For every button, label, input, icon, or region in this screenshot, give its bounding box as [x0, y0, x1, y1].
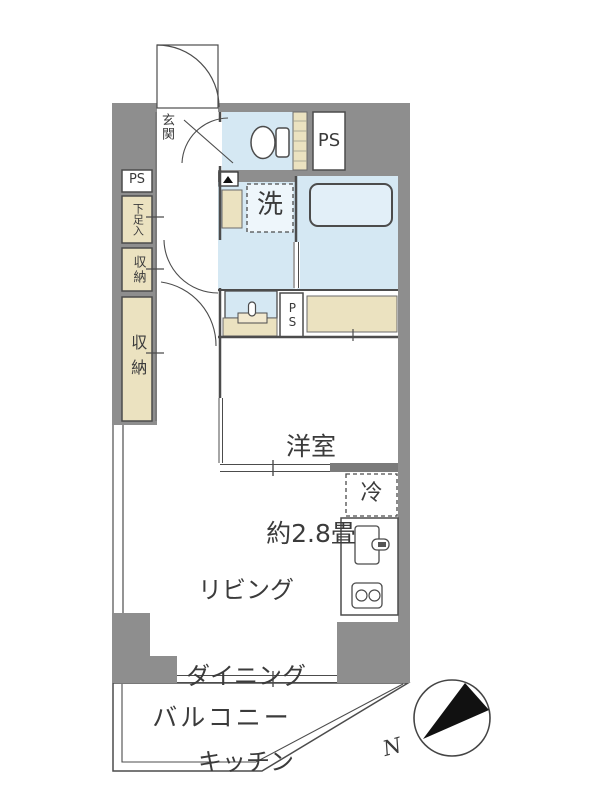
washroom-counter [222, 190, 242, 228]
fridge-label: 冷 [346, 481, 397, 506]
ldk-line1: リビング [157, 576, 335, 605]
bedroom-side-door [219, 398, 223, 463]
bath-door [293, 242, 300, 288]
ldk-line3: キッチン [157, 748, 335, 777]
storage-large-label: 収納 [122, 297, 152, 421]
toilet-icon [251, 127, 289, 159]
ps-middle-label: PS [280, 294, 303, 336]
entrance-label: 玄関 [158, 113, 173, 141]
ps-left-label: PS [122, 173, 152, 188]
washer-label: 洗 [247, 191, 293, 221]
step-icon [219, 172, 238, 186]
toilet-side-shelf [293, 112, 307, 170]
ldk-line2: ダイニング [157, 662, 335, 691]
floor-plan: 玄関 PS 下足入 収納 収納 PS 洗 PS 洋室 約2.8畳 リビング ダイ… [0, 0, 600, 800]
bedroom-closet-strip [307, 296, 397, 332]
left-window [112, 425, 124, 613]
compass [414, 680, 490, 756]
entrance-door [157, 45, 219, 112]
storage-small-label: 収納 [122, 248, 152, 291]
ps-top-label: PS [313, 112, 345, 170]
balcony-label: バルコニー [132, 704, 312, 733]
shoe-storage-label: 下足入 [122, 196, 152, 243]
bathtub-icon [310, 184, 392, 226]
western-room-name: 洋室 [223, 432, 399, 461]
ldk-label: リビング ダイニング キッチン 約8.5畳 [157, 518, 335, 800]
